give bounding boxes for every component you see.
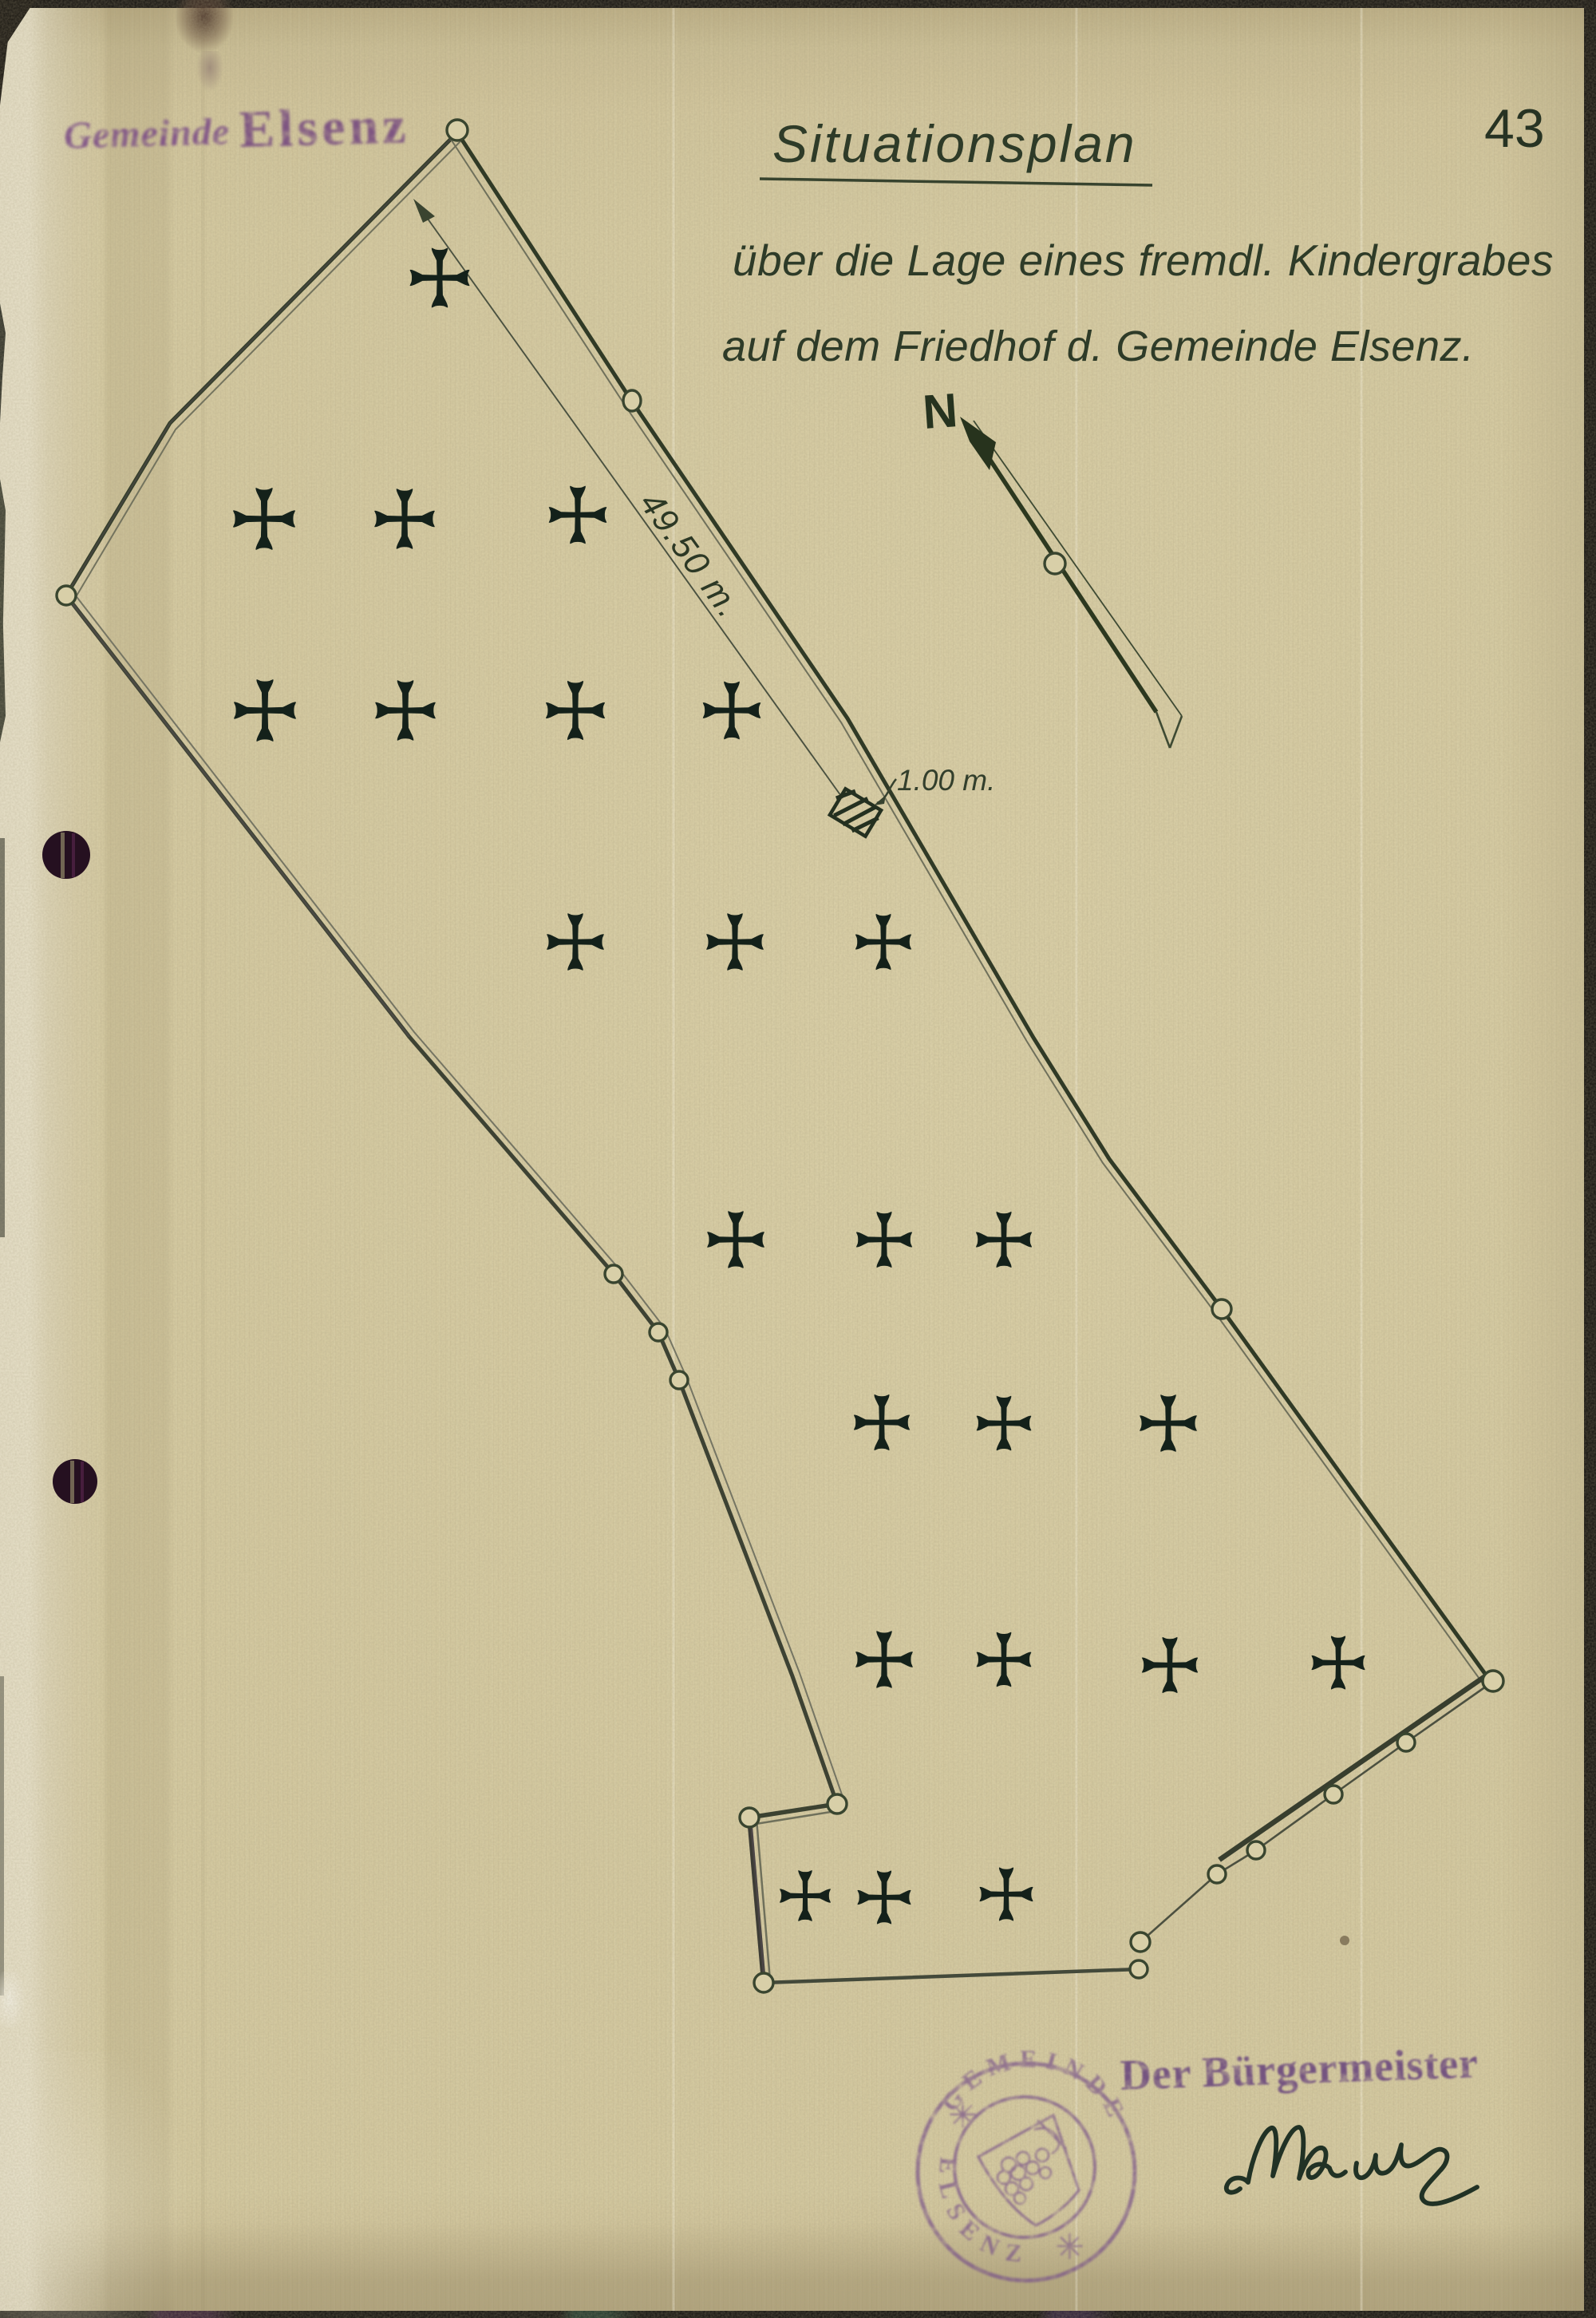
svg-text:Situationsplan: Situationsplan xyxy=(772,114,1137,173)
svg-text:auf dem Friedhof d. Gemeinde E: auf dem Friedhof d. Gemeinde Elsenz. xyxy=(722,322,1475,370)
svg-text:N: N xyxy=(921,383,959,439)
svg-text:1.00 m.: 1.00 m. xyxy=(897,764,995,797)
svg-text:✳: ✳ xyxy=(1055,2228,1084,2267)
svg-text:über die Lage eines fremdl. Ki: über die Lage eines fremdl. Kindergrabes xyxy=(733,235,1554,285)
svg-text:✳: ✳ xyxy=(948,2096,978,2135)
svg-text:Elsenz: Elsenz xyxy=(239,96,410,159)
svg-text:43: 43 xyxy=(1484,98,1545,159)
svg-text:Gemeinde: Gemeinde xyxy=(63,110,230,156)
